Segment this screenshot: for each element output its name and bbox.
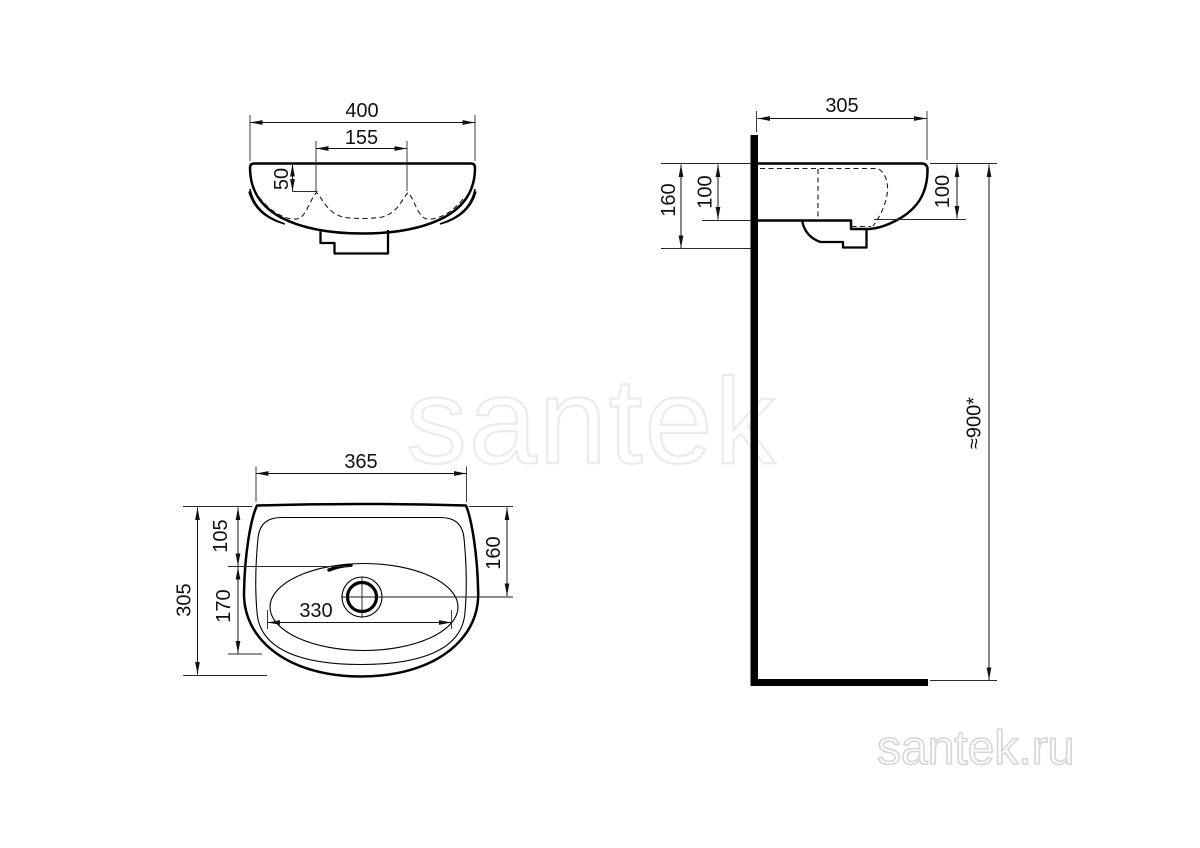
front-inner-bowl-dashed: [259, 193, 465, 220]
dim-plan-tap-line-to-bowl: 170: [213, 589, 235, 622]
dim-plan-bowl-width: 330: [299, 600, 332, 622]
dim-side-bowl-depth-right: 100: [932, 175, 954, 208]
dim-plan-overall-depth: 305: [174, 583, 196, 616]
floor-line: [751, 679, 929, 686]
dim-side-depth: 305: [825, 95, 858, 117]
dim-side-overall-height: 160: [658, 183, 680, 216]
dim-plan-rim-to-drain: 160: [483, 536, 505, 569]
watermark: santek: [406, 353, 777, 489]
dim-front-rim-drop: 50: [271, 168, 293, 190]
front-view: 400 155 50: [249, 100, 476, 254]
dim-front-tap-hole-spacing: 155: [345, 127, 378, 149]
dim-plan-top-width: 365: [344, 451, 377, 473]
site-logo-text: santek.ru: [877, 722, 1074, 775]
dim-mounting-height: ≈900*: [964, 397, 986, 449]
site-logo: santek.ru: [877, 722, 1074, 775]
watermark-text: santek: [406, 353, 777, 489]
dim-side-bowl-depth-left: 100: [695, 175, 717, 208]
wall-line: [751, 135, 759, 686]
dim-plan-rim-to-tap-line: 105: [210, 519, 232, 552]
dim-front-overall-width: 400: [345, 100, 378, 122]
washbasin-dimension-drawing: santek santek.ru 400 155 50: [0, 0, 1200, 848]
technical-drawing: santek santek.ru 400 155 50: [0, 0, 1200, 848]
